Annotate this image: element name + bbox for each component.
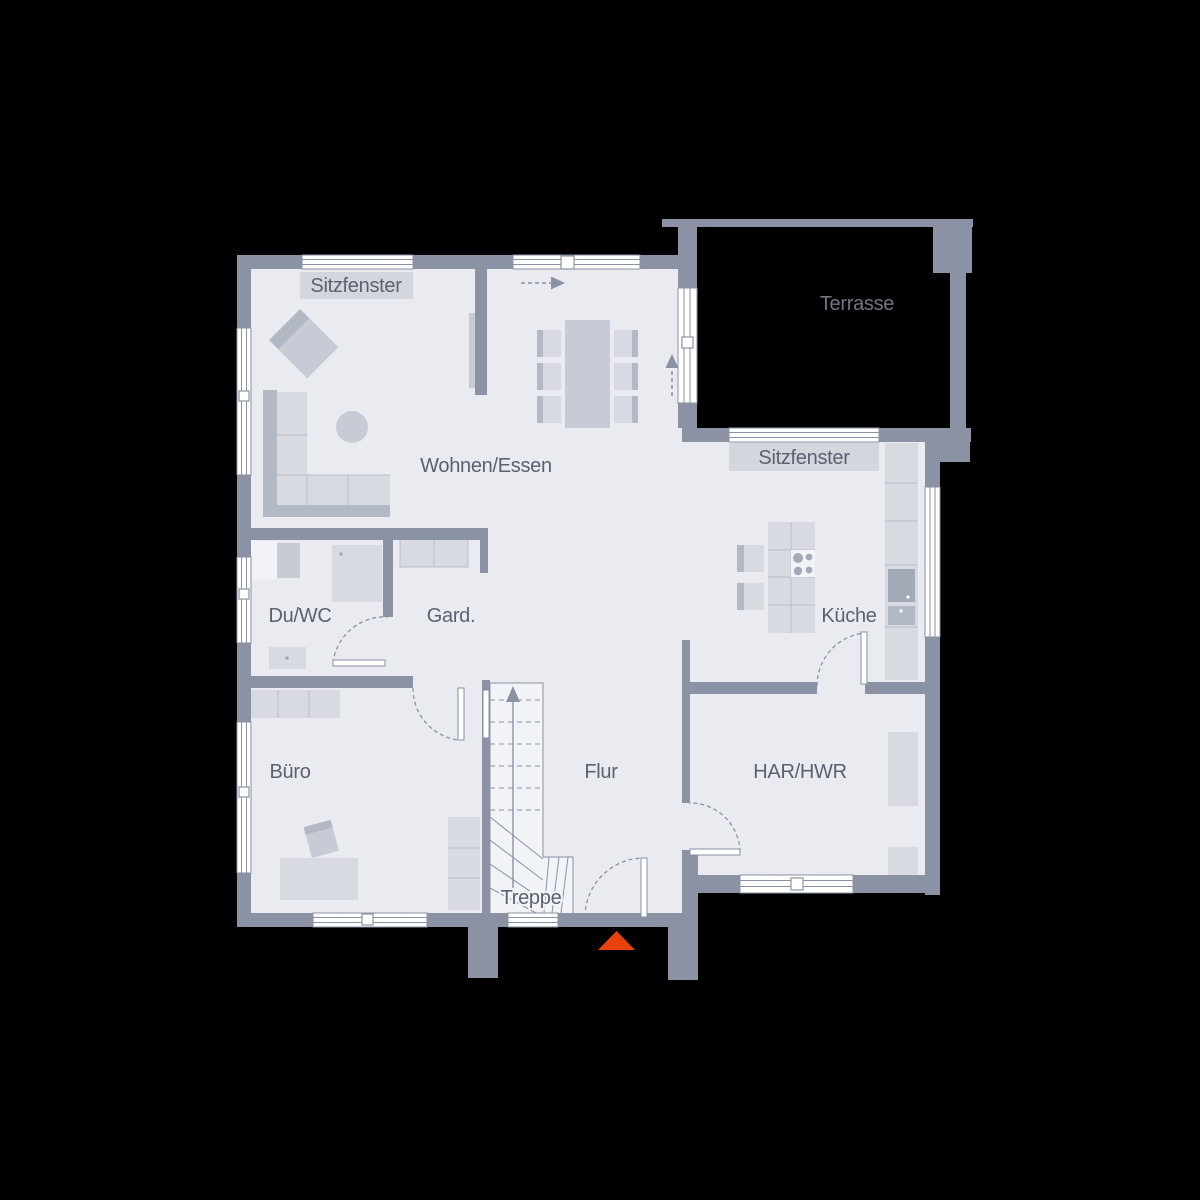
utility-appliances xyxy=(888,732,918,877)
window-utility-bottom xyxy=(740,875,853,893)
shower-wc-label: Du/WC xyxy=(269,605,332,627)
office-label: Büro xyxy=(269,761,310,783)
utility-label: HAR/HWR xyxy=(753,761,846,783)
window-seat-right xyxy=(729,428,879,442)
window-dining-top xyxy=(513,255,640,269)
terrace-sliding-door xyxy=(678,288,697,403)
window-office-left xyxy=(237,722,251,873)
dining-table xyxy=(565,320,610,428)
kitchen-island xyxy=(768,522,815,633)
kitchen-label: Küche xyxy=(821,605,876,627)
office-sideboard xyxy=(248,690,340,718)
living-dining-label: Wohnen/Essen xyxy=(420,455,552,477)
window-seat-top xyxy=(302,255,413,269)
office-desk xyxy=(280,858,358,900)
window-living-left xyxy=(237,328,251,475)
porch-pillar-right xyxy=(668,927,698,980)
wc xyxy=(277,543,300,578)
terrace-walls xyxy=(662,219,973,442)
hallway-label: Flur xyxy=(584,761,618,783)
staircase-label: Treppe xyxy=(501,887,562,909)
floor-plan-canvas: Sitzfenster Sitzfenster Terrasse Wohnen/… xyxy=(0,0,1200,1200)
office-cabinet xyxy=(448,817,480,910)
entrance-marker-triangle xyxy=(598,931,635,950)
porch-pillar-left xyxy=(468,927,498,978)
window-duwc-left xyxy=(237,557,251,643)
oven xyxy=(888,569,915,602)
window-stair-bottom xyxy=(508,913,558,927)
seat-window-right-label: Sitzfenster xyxy=(758,447,850,469)
wardrobe-unit xyxy=(400,538,468,567)
kitchen-counter xyxy=(885,443,918,680)
window-kitchen-right xyxy=(925,487,940,637)
coffee-table xyxy=(336,411,368,443)
cooktop xyxy=(791,550,815,577)
cloakroom-label: Gard. xyxy=(427,605,476,627)
dining-set xyxy=(537,320,638,428)
dishwasher xyxy=(888,606,915,625)
floor-plan-svg: Sitzfenster Sitzfenster Terrasse Wohnen/… xyxy=(0,0,1200,1200)
seat-window-top-label: Sitzfenster xyxy=(310,275,402,297)
terrace-label: Terrasse xyxy=(820,293,894,315)
window-office-bottom xyxy=(313,913,427,927)
tv-sideboard xyxy=(469,313,476,388)
